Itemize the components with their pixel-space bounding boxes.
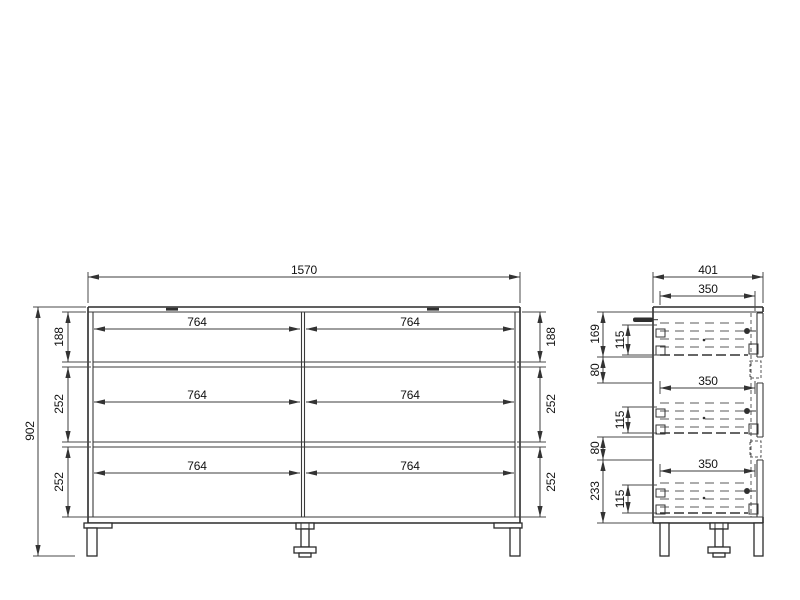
- left-leg: [87, 528, 97, 556]
- front-dimension-labels: 1570 902 188 252 252 188 252 252 764 764…: [23, 263, 558, 492]
- side-front-leg: [754, 523, 763, 556]
- gap-height-label: 80: [588, 363, 602, 376]
- row-height-right-label: 252: [544, 394, 558, 414]
- row-height-left-label: 188: [52, 327, 66, 347]
- drawing-canvas: 1570 902 188 252 252 188 252 252 764 764…: [0, 0, 800, 600]
- screw-icon: [744, 408, 750, 414]
- drawer-width-label: 764: [187, 388, 207, 402]
- gap-height-label: 80: [588, 441, 602, 454]
- side-back-leg: [660, 523, 669, 556]
- side-cabinet-geometry: [633, 307, 763, 523]
- slide-mark-icon: [166, 308, 178, 311]
- row-height-right-label: 252: [544, 472, 558, 492]
- right-leg: [510, 528, 520, 556]
- side-view: 401 350 350 350 169 80 80 233 115 115 11…: [588, 263, 763, 557]
- front-width-label: 1570: [291, 263, 317, 277]
- center-adjustable-foot: [294, 523, 316, 557]
- drawer-side-height-label: 115: [613, 410, 627, 429]
- front-cabinet-geometry: [88, 307, 520, 523]
- left-leg-plate: [84, 523, 112, 528]
- screw-icon: [744, 328, 750, 334]
- screw-icon: [744, 488, 750, 494]
- bottom-section-label: 233: [588, 481, 602, 501]
- top-section-label: 169: [588, 324, 602, 344]
- row-height-right-label: 188: [544, 327, 558, 347]
- slide-mark-icon: [427, 308, 439, 311]
- drawer-runner-icon: [633, 318, 653, 323]
- front-height-label: 902: [23, 421, 37, 441]
- front-dimension-lines: [33, 272, 546, 556]
- side-depth-label: 401: [698, 263, 718, 277]
- front-legs: [84, 523, 522, 557]
- drawer-depth-label: 350: [698, 282, 718, 296]
- drawer-width-label: 764: [187, 459, 207, 473]
- drawer-depth-label: 350: [698, 457, 718, 471]
- drawer-depth-label: 350: [698, 374, 718, 388]
- row-height-left-label: 252: [52, 472, 66, 492]
- front-view: 1570 902 188 252 252 188 252 252 764 764…: [23, 263, 558, 557]
- row-height-left-label: 252: [52, 394, 66, 414]
- drawer-width-label: 764: [400, 315, 420, 329]
- drawer-width-label: 764: [187, 315, 207, 329]
- drawer-side-height-label: 115: [613, 330, 627, 349]
- furniture-dimension-drawing: 1570 902 188 252 252 188 252 252 764 764…: [0, 0, 800, 600]
- side-dimension-lines: [597, 272, 763, 523]
- side-legs: [660, 523, 763, 557]
- drawer-width-label: 764: [400, 388, 420, 402]
- right-leg-plate: [494, 523, 522, 528]
- side-adjustable-foot: [708, 523, 730, 557]
- drawer-width-label: 764: [400, 459, 420, 473]
- drawer-side-height-label: 115: [613, 489, 627, 508]
